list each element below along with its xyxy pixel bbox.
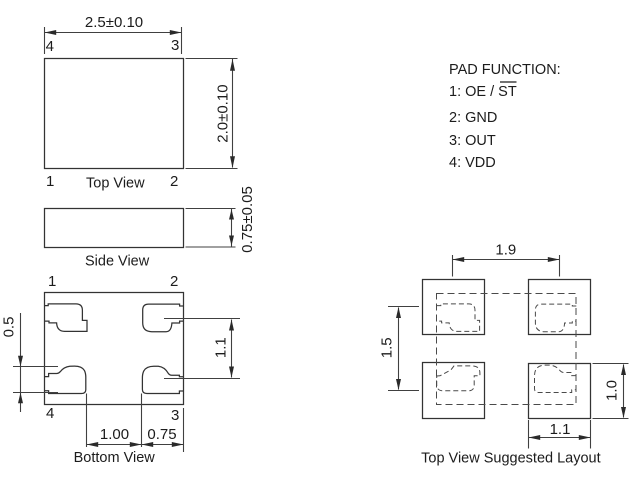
svg-text:1: 1 bbox=[46, 173, 54, 190]
svg-text:2.0±0.10: 2.0±0.10 bbox=[215, 84, 232, 142]
svg-text:4: 4 bbox=[46, 405, 54, 422]
svg-text:Bottom View: Bottom View bbox=[74, 450, 156, 466]
svg-text:0.75: 0.75 bbox=[147, 426, 176, 443]
svg-text:0.5: 0.5 bbox=[1, 317, 18, 338]
svg-text:1.1: 1.1 bbox=[212, 337, 229, 358]
svg-text:PAD FUNCTION:: PAD FUNCTION: bbox=[449, 62, 561, 78]
svg-text:1.0: 1.0 bbox=[604, 380, 621, 401]
svg-text:Side View: Side View bbox=[85, 254, 150, 270]
svg-text:2: 2 bbox=[170, 173, 178, 190]
svg-text:2.5±0.10: 2.5±0.10 bbox=[85, 14, 143, 31]
svg-text:Top View: Top View bbox=[86, 176, 145, 192]
svg-text:4: VDD: 4: VDD bbox=[449, 155, 496, 171]
svg-text:1: 1 bbox=[48, 273, 56, 290]
svg-text:1.00: 1.00 bbox=[100, 426, 129, 443]
svg-text:3: 3 bbox=[171, 407, 179, 424]
svg-text:1.1: 1.1 bbox=[550, 421, 571, 438]
svg-text:3: OUT: 3: OUT bbox=[449, 133, 496, 149]
svg-text:1.5: 1.5 bbox=[379, 337, 396, 358]
svg-text:2: 2 bbox=[170, 273, 178, 290]
svg-text:1.9: 1.9 bbox=[495, 241, 516, 258]
svg-text:3: 3 bbox=[171, 37, 179, 54]
svg-text:Top View Suggested Layout: Top View Suggested Layout bbox=[421, 451, 601, 467]
svg-text:4: 4 bbox=[46, 38, 54, 55]
svg-text:0.75±0.05: 0.75±0.05 bbox=[239, 186, 256, 253]
svg-text:2: GND: 2: GND bbox=[449, 110, 497, 126]
svg-text:1: OE / ST: 1: OE / ST bbox=[449, 84, 517, 100]
